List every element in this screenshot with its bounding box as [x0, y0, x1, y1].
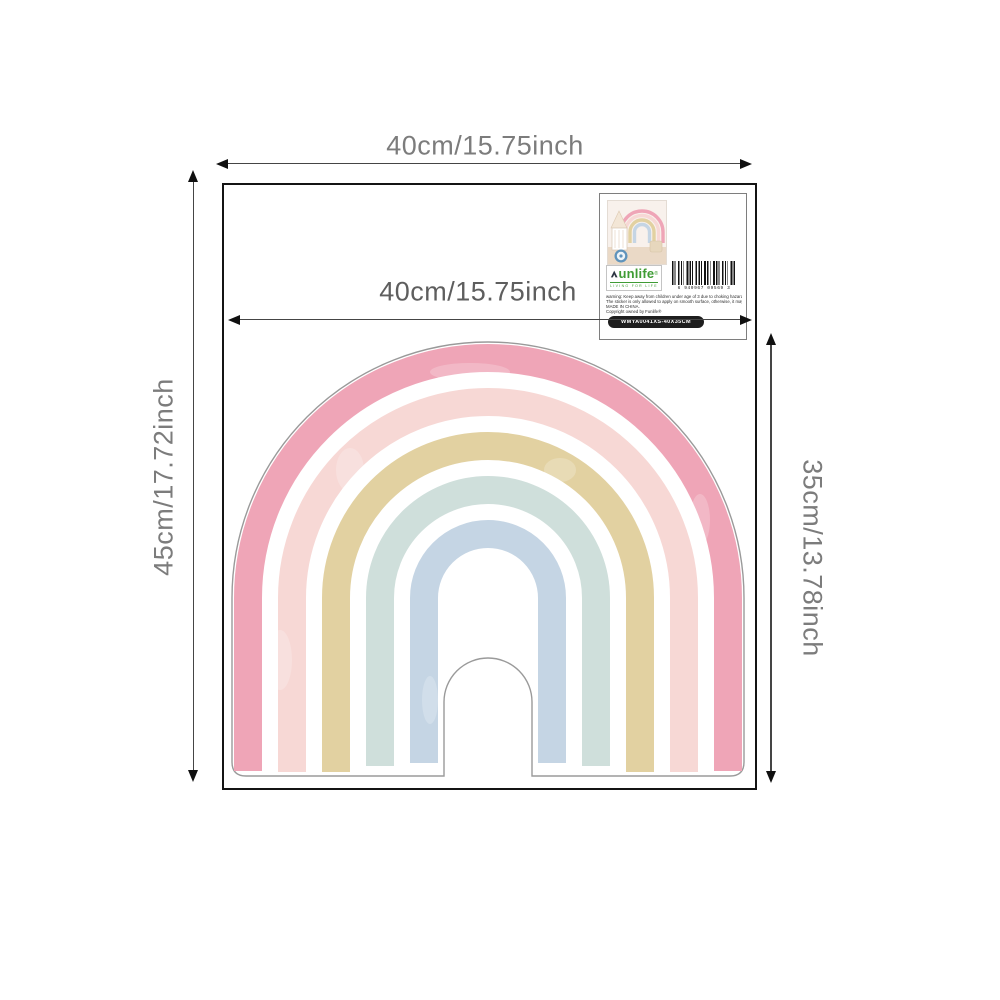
product-dimension-diagram: unlife ® LIVING FOR LIFE 6 940967 09569 … — [0, 0, 1000, 1000]
arrowhead-down-icon — [188, 770, 198, 782]
arrowhead-down-icon — [766, 771, 776, 783]
barcode-digits: 6 940967 09569 3 — [672, 286, 736, 291]
arrowhead-right-icon — [740, 315, 752, 325]
funlife-roof-icon — [610, 268, 618, 280]
warning-line: Copyright owned by Funlife® — [606, 309, 742, 314]
arrowhead-left-icon — [216, 159, 228, 169]
dimension-label-rainbow-width: 40cm/15.75inch — [379, 277, 577, 308]
dimension-line-left — [193, 176, 195, 776]
arrowhead-right-icon — [740, 159, 752, 169]
warning-text-block: warning: Keep away from children under a… — [606, 294, 742, 314]
nursery-photo — [607, 200, 667, 265]
dimension-line-top — [222, 163, 748, 165]
dimension-line-inner — [234, 319, 746, 321]
photo-crib — [612, 228, 627, 250]
barcode-bars-icon — [672, 261, 736, 285]
arrowhead-up-icon — [766, 333, 776, 345]
dimension-label-rainbow-height: 35cm/13.78inch — [797, 459, 828, 657]
funlife-logo: unlife ® LIVING FOR LIFE — [606, 265, 662, 291]
registered-mark: ® — [654, 268, 658, 280]
dimension-line-right — [770, 339, 772, 777]
dimension-label-left-height: 45cm/17.72inch — [149, 378, 180, 576]
arrowhead-left-icon — [228, 315, 240, 325]
barcode: 6 940967 09569 3 — [672, 261, 736, 293]
arrowhead-up-icon — [188, 170, 198, 182]
brand-tagline: LIVING FOR LIFE — [610, 282, 658, 288]
photo-basket — [650, 241, 662, 252]
brand-name: unlife — [618, 268, 654, 280]
dimension-label-top-width: 40cm/15.75inch — [386, 131, 584, 162]
